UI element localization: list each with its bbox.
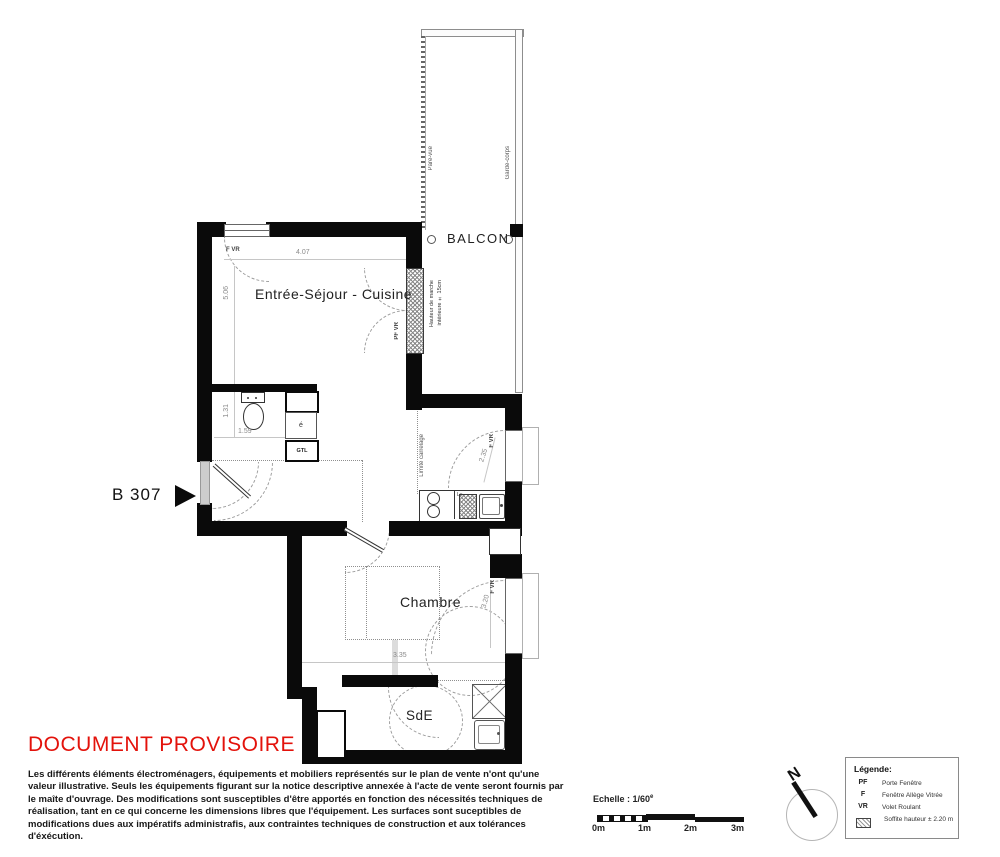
tile-limit-line <box>362 460 363 522</box>
dim-line <box>302 662 505 663</box>
balcony-guardrail <box>515 29 523 393</box>
wall <box>406 222 422 268</box>
garde-corps-label: Garde-corps <box>505 146 511 179</box>
balcony-door-label: PF VR <box>394 322 400 340</box>
dim-bedroom-width: 3.35 <box>393 652 407 659</box>
floorplan-page: { "plan": { "unit_label": "B 307", "room… <box>0 0 1000 857</box>
kitchen-window-sill <box>522 427 539 485</box>
scale-tick-2m: 2m <box>684 823 697 833</box>
kitchen-counter: Lv <box>419 490 509 522</box>
step-height-note-line1: Hauteur de marche <box>429 280 435 327</box>
scale-segment-solid <box>646 814 695 820</box>
glass-partition-line <box>438 680 505 681</box>
dim-wc-height: 1.31 <box>223 404 230 418</box>
toilet-bowl <box>243 403 264 430</box>
wall <box>505 394 522 430</box>
wall <box>342 675 438 687</box>
entrance-door-leaf <box>200 461 210 505</box>
dim-line <box>224 259 413 260</box>
wall <box>197 521 347 536</box>
wall <box>287 521 302 699</box>
bedroom-window-sill <box>522 573 539 659</box>
dim-living-width: 4.07 <box>296 249 310 256</box>
legend-row: FFenêtre Allège Vitrée <box>852 791 954 802</box>
balcony-door-swing-arc <box>364 310 407 353</box>
balcony-privacy-screen <box>421 36 426 230</box>
balcony-door-threshold <box>406 268 424 354</box>
shower-tray <box>472 684 507 719</box>
room-label-shower: SdE <box>406 708 433 723</box>
legend-abbr-pf: PF <box>852 779 874 786</box>
sink-tap <box>500 504 503 507</box>
legend-row: PFPorte Fenêtre <box>852 779 954 790</box>
electrical-label: é <box>299 422 303 429</box>
washbasin-tap <box>497 732 500 735</box>
legend-box: Légende: PFPorte Fenêtre FFenêtre Allège… <box>845 757 959 839</box>
sink-basin <box>479 494 505 519</box>
room-label-balcony: BALCON <box>447 231 509 246</box>
kitchen-window <box>505 430 523 482</box>
dim-line <box>234 266 235 390</box>
burner <box>427 505 440 518</box>
legal-disclaimer: Les différents éléments électroménagers,… <box>28 769 569 843</box>
burner <box>427 492 440 505</box>
entrance-arrow <box>175 485 196 507</box>
toilet-button <box>255 397 257 399</box>
gtl-label: GTL <box>297 448 308 454</box>
wall <box>197 222 212 462</box>
legend-row: Soffite hauteur ± 2.20 m <box>852 815 954 826</box>
wall <box>302 699 317 761</box>
dim-line <box>214 437 286 438</box>
kitchen-window-label: F VR <box>489 434 495 448</box>
wall <box>406 352 422 410</box>
scale-segment-solid <box>695 817 744 822</box>
scale-bar <box>597 814 744 822</box>
tile-limit-label: Limite carrelage <box>419 434 425 477</box>
room-label-living: Entrée-Séjour - Cuisine <box>255 286 412 302</box>
wall <box>287 687 317 699</box>
scale-segment-dashed <box>597 815 648 822</box>
wall-finish-strip <box>392 640 398 678</box>
toilet-tank <box>241 392 265 403</box>
sink-inner <box>482 497 500 515</box>
legend-abbr-f: F <box>852 791 874 798</box>
legend-abbr-vr: VR <box>852 803 874 810</box>
scale-label: Echelle : 1/60e <box>593 794 653 804</box>
dishwasher-label: Lv <box>457 492 462 498</box>
legend-label-f: Fenêtre Allège Vitrée <box>882 791 943 799</box>
wall-niche <box>489 528 521 555</box>
bedroom-window <box>505 578 523 654</box>
window-label-top: F VR <box>226 247 240 253</box>
pare-vue-label: Pare-vue <box>428 146 434 170</box>
wall <box>266 222 420 237</box>
shower-room-door-leaf <box>316 710 346 759</box>
toilet-button <box>247 397 249 399</box>
room-label-bedroom: Chambre <box>400 594 461 610</box>
dim-wc-width: 1.59 <box>238 428 252 435</box>
balcony-top-rail <box>421 29 524 37</box>
legend-label-soffit: Soffite hauteur ± 2.20 m <box>884 815 953 823</box>
kitchen-window-swing-arc <box>448 430 506 488</box>
legend-label-pf: Porte Fenêtre <box>882 779 922 787</box>
shelf-cell <box>285 391 319 413</box>
wall <box>490 554 522 578</box>
scale-tick-3m: 3m <box>731 823 744 833</box>
electrical-cell: é <box>285 412 317 439</box>
living-room-window <box>224 224 270 237</box>
cooktop <box>420 491 455 519</box>
scale-tick-0m: 0m <box>592 823 605 833</box>
dim-line <box>234 392 235 438</box>
wall <box>505 652 522 762</box>
tile-limit-line <box>417 406 418 494</box>
balcony-column <box>510 224 523 237</box>
legend-label-vr: Volet Roulant <box>882 803 921 811</box>
gtl-cell: GTL <box>285 440 319 462</box>
legend-title: Légende: <box>854 764 892 774</box>
provisional-document-stamp: DOCUMENT PROVISOIRE <box>28 733 295 757</box>
bed-pillow-line <box>366 566 367 638</box>
step-height-note-line2: intérieure ± 15cm <box>437 280 443 325</box>
balcony-post <box>427 235 436 244</box>
scale-tick-1m: 1m <box>638 823 651 833</box>
legend-row: VRVolet Roulant <box>852 803 954 814</box>
bedroom-window-label: F VR <box>490 580 496 594</box>
dim-living-height: 5.06 <box>223 286 230 300</box>
wall <box>505 480 522 528</box>
scale-text: Echelle : 1/60 <box>593 794 650 804</box>
unit-number: B 307 <box>112 485 161 505</box>
scale-sup: e <box>650 794 653 800</box>
washbasin <box>474 720 505 750</box>
soffit-hatch-icon <box>856 818 871 828</box>
north-label: N <box>785 764 805 785</box>
